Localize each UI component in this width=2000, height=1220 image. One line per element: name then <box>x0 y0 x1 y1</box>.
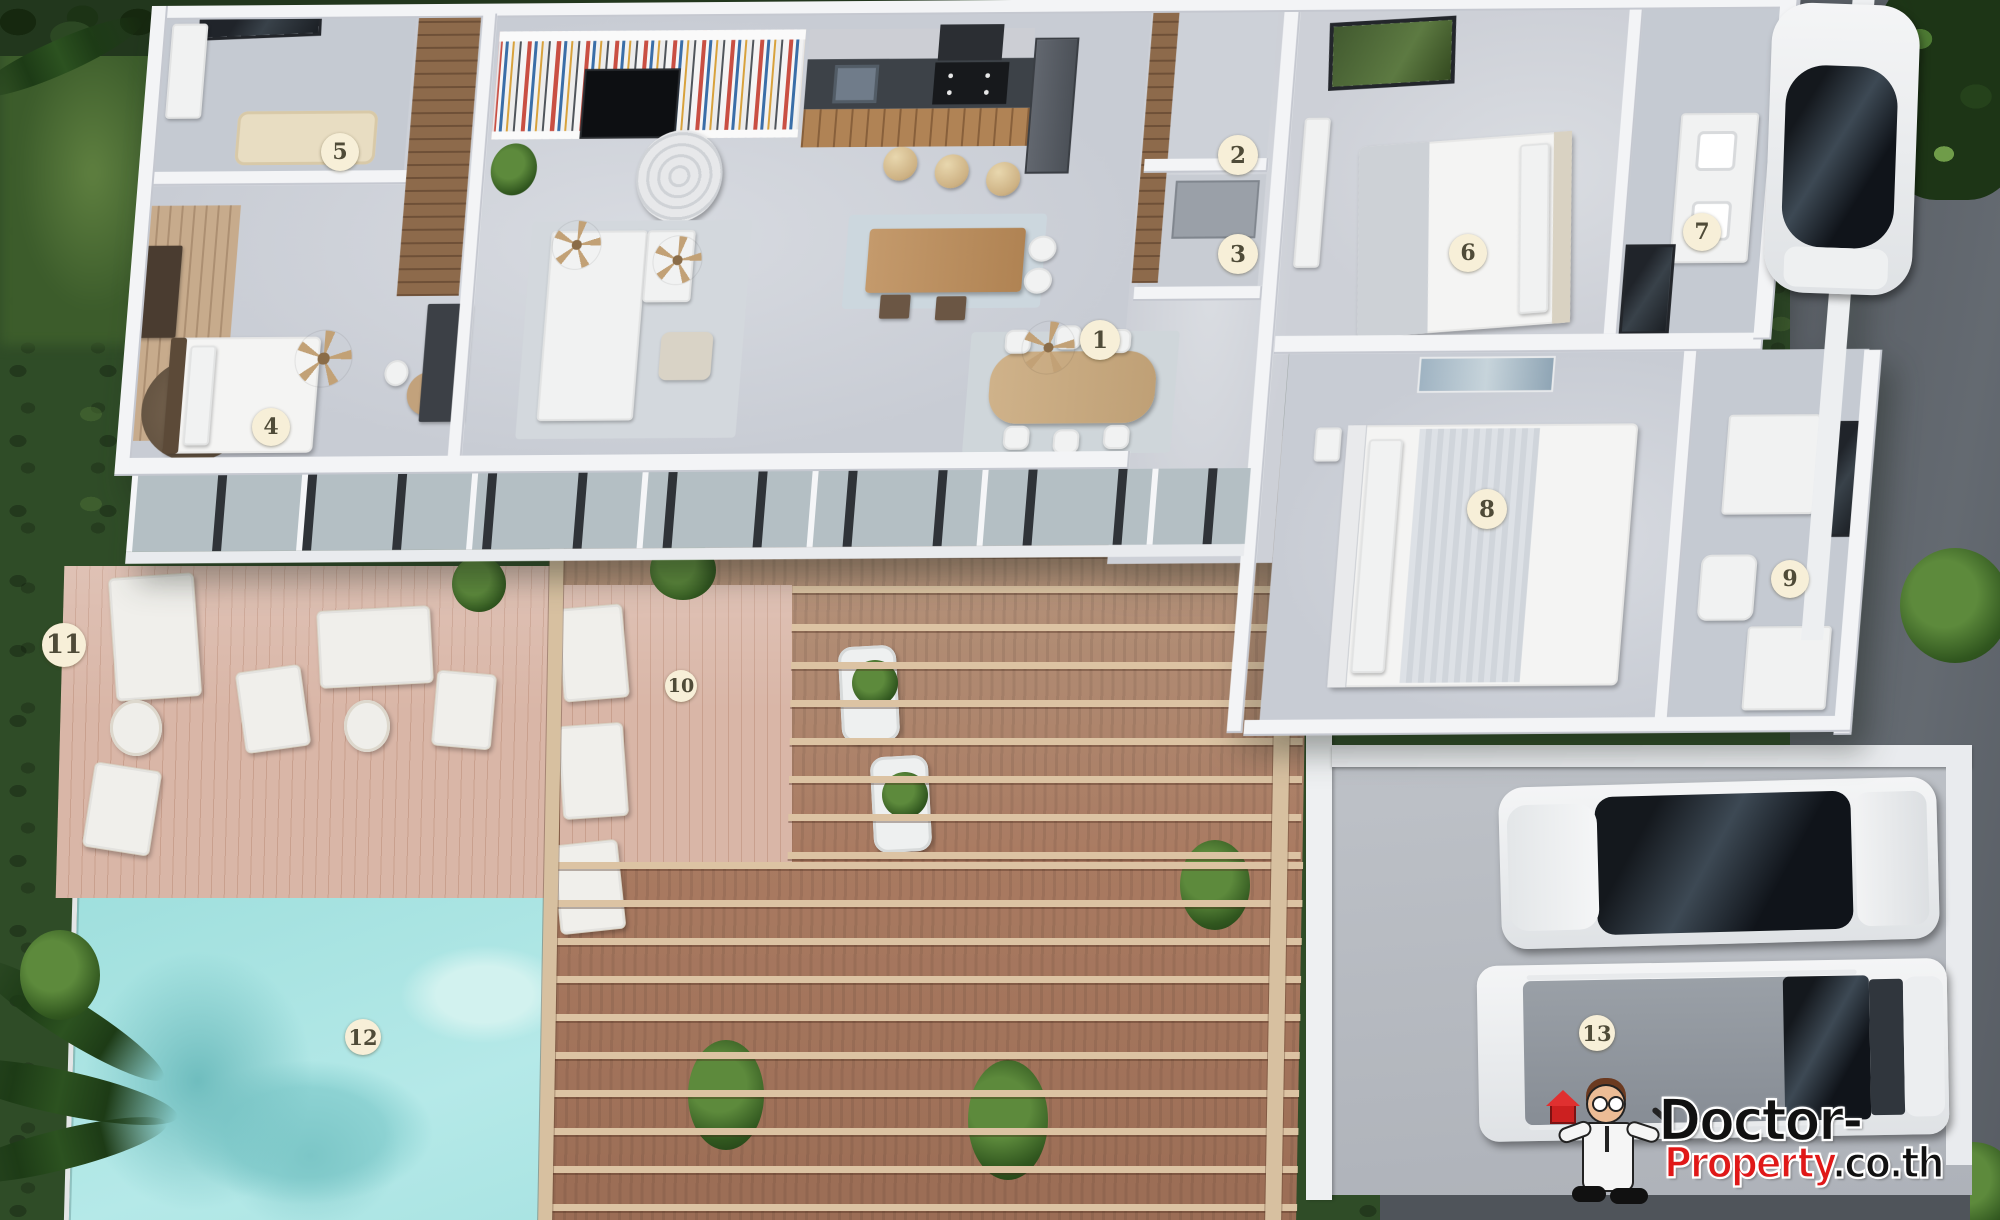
room-marker-4: 4 <box>252 408 290 446</box>
watermark-brand-line2: Property.co.th <box>1664 1144 1943 1183</box>
mascot-shoe-right <box>1610 1188 1648 1204</box>
room-marker-2: 2 <box>1218 135 1258 175</box>
watermark: Doctor- Property.co.th <box>1530 1070 1990 1220</box>
mascot-glasses <box>1592 1096 1608 1112</box>
room-marker-9: 9 <box>1771 560 1809 598</box>
plant-pool-left <box>20 930 100 1020</box>
mascot-tie <box>1605 1126 1609 1152</box>
room-marker-8: 8 <box>1467 489 1507 529</box>
room-marker-12: 12 <box>345 1019 381 1055</box>
mascot-glasses-2 <box>1608 1096 1624 1112</box>
brand-suffix: .co.th <box>1832 1138 1943 1187</box>
floorplan-render: 12345678910111213 Doctor- Property. <box>0 0 2000 1220</box>
mascot-shoe-left <box>1572 1186 1606 1202</box>
room-marker-7: 7 <box>1683 213 1721 251</box>
mascot-house-icon <box>1552 1104 1574 1122</box>
room-marker-1: 1 <box>1080 320 1120 360</box>
room-marker-13: 13 <box>1579 1015 1615 1051</box>
room-marker-6: 6 <box>1449 234 1487 272</box>
room-marker-10: 10 <box>665 670 697 702</box>
mascot-head <box>1588 1086 1624 1122</box>
mascot-house-roof <box>1546 1090 1580 1106</box>
room-marker-11: 11 <box>42 623 86 667</box>
room-marker-3: 3 <box>1218 234 1258 274</box>
brand-red: Property <box>1664 1138 1832 1187</box>
room-marker-5: 5 <box>321 133 359 171</box>
room-markers-layer: 12345678910111213 <box>0 0 2000 1220</box>
